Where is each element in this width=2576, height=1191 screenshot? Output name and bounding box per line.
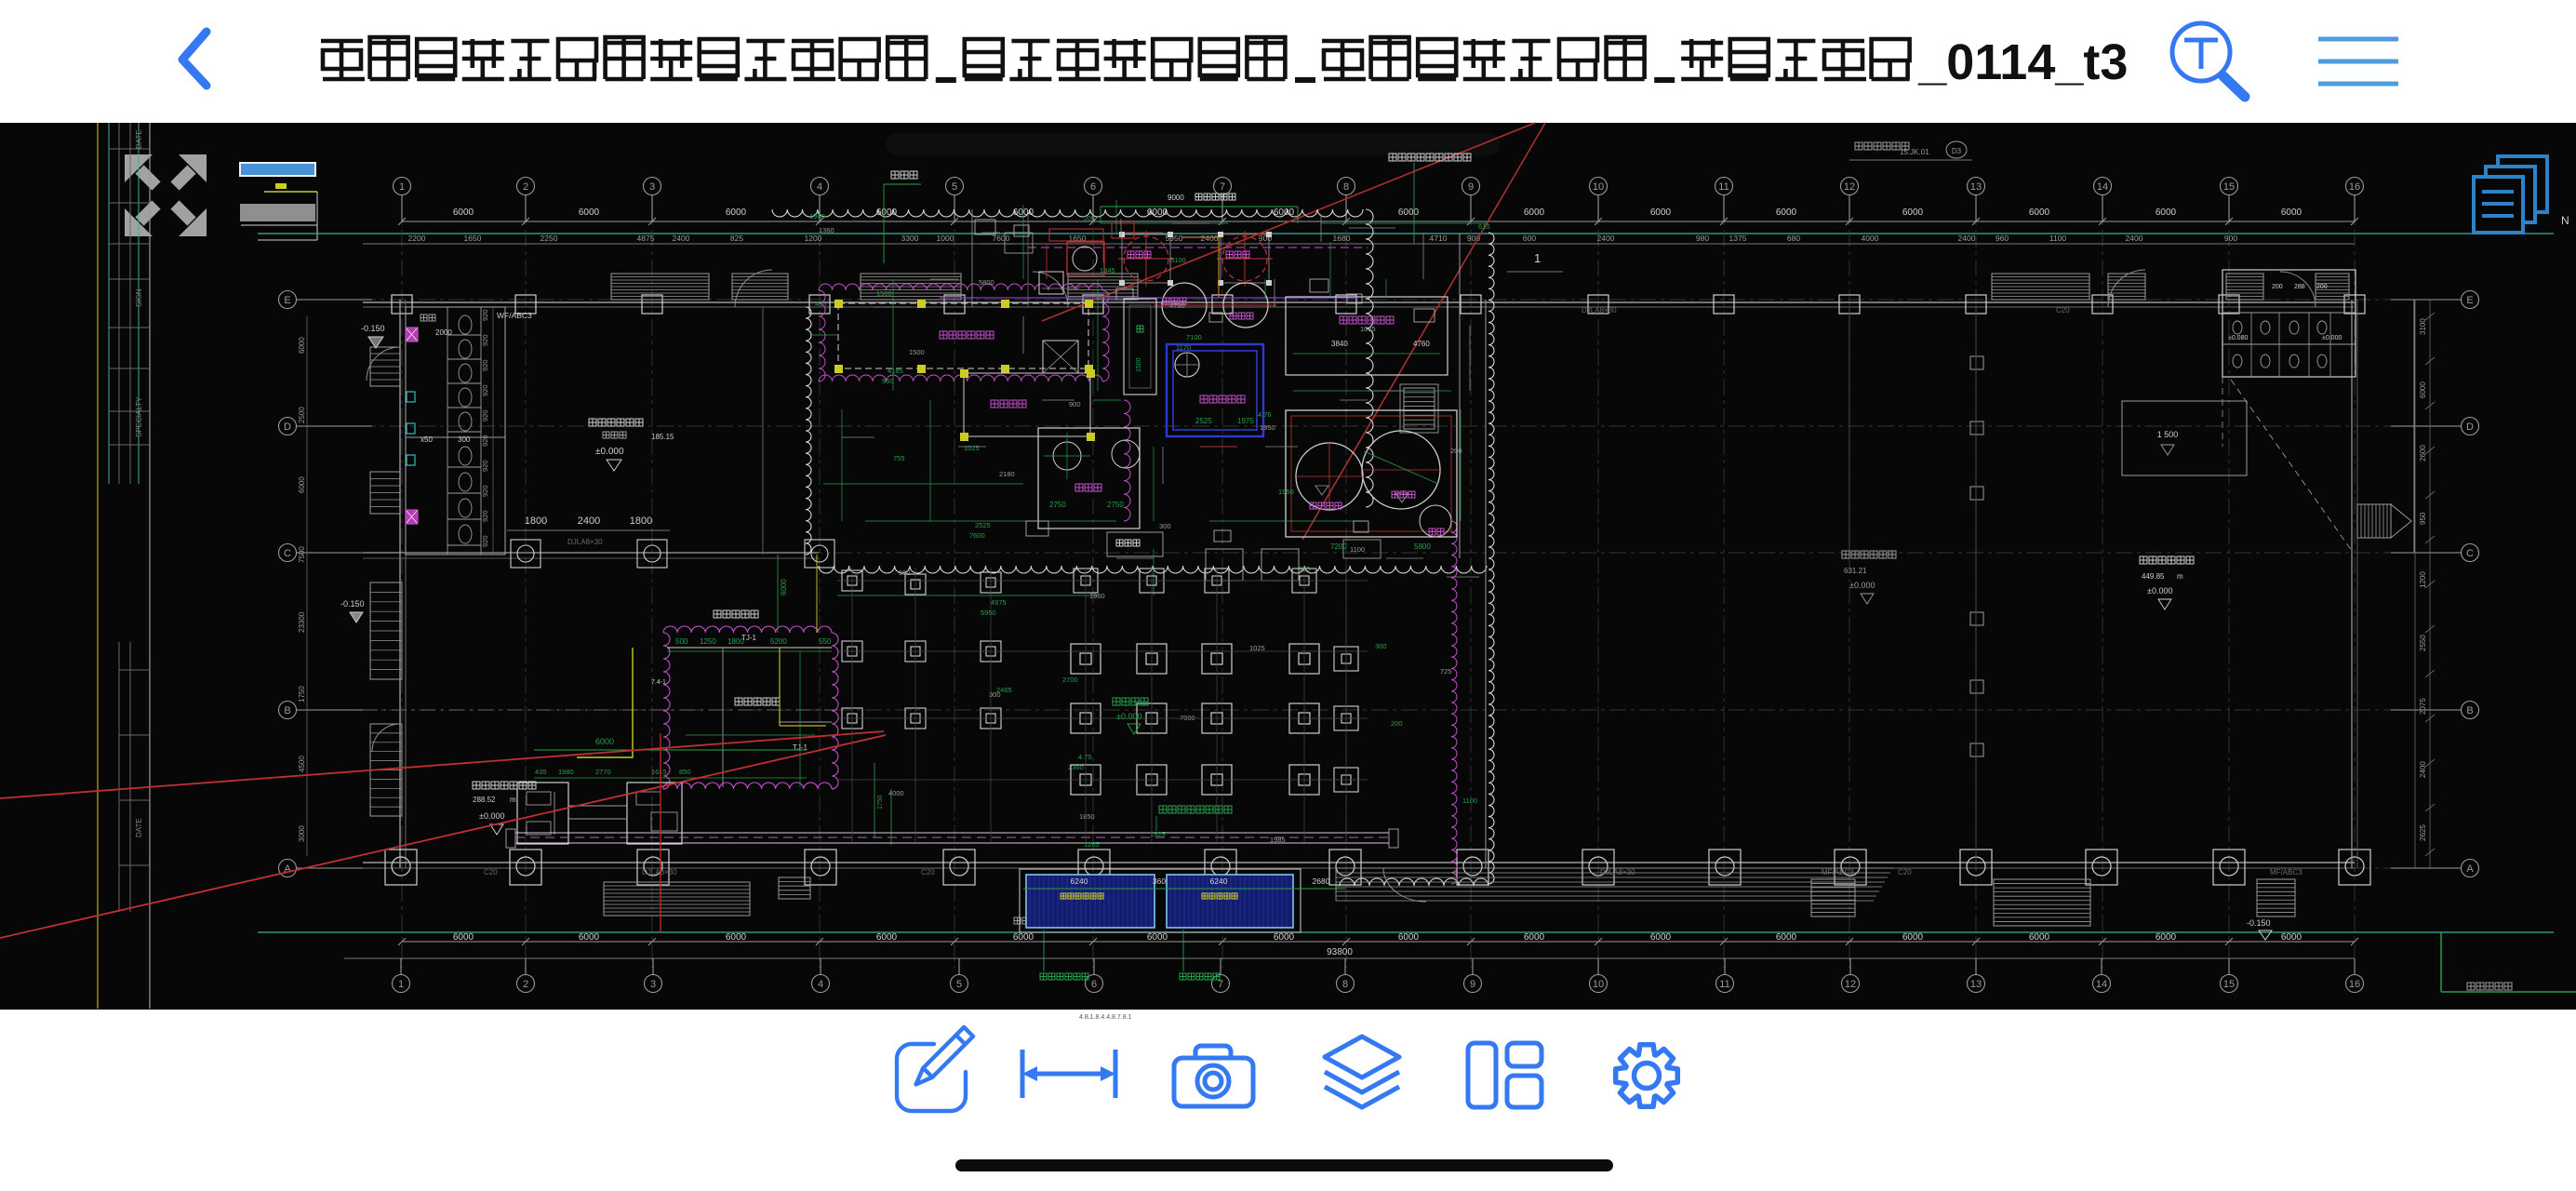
svg-text:6000: 6000 bbox=[726, 932, 747, 943]
svg-text:6000: 6000 bbox=[1274, 932, 1295, 943]
svg-text:DATE: DATE bbox=[135, 129, 143, 149]
svg-text:1345: 1345 bbox=[1100, 266, 1115, 274]
svg-text:6000: 6000 bbox=[1524, 932, 1545, 943]
svg-text:920: 920 bbox=[481, 460, 489, 472]
svg-text:960: 960 bbox=[1995, 234, 2009, 243]
svg-text:1500: 1500 bbox=[876, 289, 892, 298]
svg-text:900: 900 bbox=[1069, 400, 1081, 408]
svg-text:1: 1 bbox=[399, 181, 405, 193]
svg-text:6: 6 bbox=[1090, 181, 1096, 193]
svg-text:C20: C20 bbox=[2056, 306, 2070, 314]
svg-text:4760: 4760 bbox=[1169, 301, 1185, 310]
svg-text:_0114_t3: _0114_t3 bbox=[1917, 34, 2128, 90]
svg-text:500: 500 bbox=[899, 569, 911, 577]
svg-text:6000: 6000 bbox=[780, 579, 788, 595]
svg-text:360: 360 bbox=[1153, 877, 1166, 886]
svg-text:D: D bbox=[2466, 422, 2474, 433]
svg-text:1980: 1980 bbox=[558, 768, 574, 776]
svg-text:B: B bbox=[2466, 705, 2473, 716]
svg-text:±0.000: ±0.000 bbox=[1849, 581, 1875, 590]
svg-text:200: 200 bbox=[2272, 284, 2283, 290]
svg-text:725: 725 bbox=[1440, 667, 1452, 676]
svg-text:185.15: 185.15 bbox=[651, 433, 674, 441]
svg-text:2500: 2500 bbox=[298, 407, 306, 423]
svg-text:2400: 2400 bbox=[2419, 761, 2427, 778]
svg-text:5: 5 bbox=[952, 181, 957, 193]
svg-text:900: 900 bbox=[2224, 234, 2237, 243]
svg-text:6000: 6000 bbox=[726, 207, 747, 218]
svg-text:5800: 5800 bbox=[1414, 542, 1431, 551]
svg-text:920: 920 bbox=[481, 334, 489, 346]
svg-text:300: 300 bbox=[458, 435, 471, 444]
svg-text:C20: C20 bbox=[921, 868, 935, 877]
svg-text:6000: 6000 bbox=[1524, 207, 1545, 218]
svg-text:1985: 1985 bbox=[1270, 836, 1286, 844]
svg-text:2700: 2700 bbox=[1062, 676, 1078, 684]
svg-text:2750: 2750 bbox=[1107, 501, 1124, 509]
svg-text:920: 920 bbox=[481, 535, 489, 547]
svg-text:288: 288 bbox=[2294, 284, 2305, 290]
svg-text:DJLA8×30: DJLA8×30 bbox=[1600, 868, 1635, 877]
svg-text:1250: 1250 bbox=[700, 637, 716, 646]
svg-text:±0.000: ±0.000 bbox=[1116, 712, 1141, 721]
svg-text:2250: 2250 bbox=[541, 234, 558, 243]
svg-text:2400: 2400 bbox=[1597, 234, 1615, 243]
svg-text:1800: 1800 bbox=[630, 515, 652, 527]
svg-text:5100: 5100 bbox=[1170, 256, 1186, 264]
svg-text:N: N bbox=[2561, 214, 2569, 227]
svg-text:920: 920 bbox=[481, 359, 489, 371]
svg-text:1500: 1500 bbox=[909, 348, 925, 356]
svg-text:1800: 1800 bbox=[525, 515, 547, 527]
svg-text:2625: 2625 bbox=[2419, 824, 2427, 841]
svg-text:7000: 7000 bbox=[1180, 714, 1195, 722]
svg-text:DJLA8×30: DJLA8×30 bbox=[1582, 306, 1617, 314]
svg-text:755: 755 bbox=[893, 454, 905, 462]
svg-text:3300: 3300 bbox=[901, 234, 919, 243]
svg-text:6000: 6000 bbox=[453, 207, 474, 218]
svg-text:2400: 2400 bbox=[1201, 234, 1219, 243]
svg-text:6000: 6000 bbox=[298, 476, 306, 493]
svg-text:1975: 1975 bbox=[1237, 417, 1254, 425]
svg-text:6000: 6000 bbox=[1398, 207, 1420, 218]
svg-text:2000: 2000 bbox=[435, 328, 452, 337]
svg-text:2075: 2075 bbox=[2419, 698, 2427, 715]
svg-text:6240: 6240 bbox=[1210, 877, 1228, 886]
svg-text:1: 1 bbox=[1534, 251, 1541, 265]
svg-text:SPECIALTY: SPECIALTY bbox=[135, 396, 143, 437]
svg-text:6000: 6000 bbox=[876, 932, 898, 943]
svg-text:TJ-1: TJ-1 bbox=[741, 634, 757, 642]
svg-text:-0.150: -0.150 bbox=[361, 324, 385, 333]
svg-text:4: 4 bbox=[817, 181, 822, 193]
svg-text:10: 10 bbox=[1593, 979, 1604, 990]
svg-text:2525: 2525 bbox=[975, 521, 991, 529]
svg-text:1960: 1960 bbox=[809, 212, 825, 221]
svg-text:SIGN: SIGN bbox=[135, 288, 143, 307]
svg-text:300: 300 bbox=[1375, 642, 1387, 650]
svg-text:15: 15 bbox=[2223, 181, 2235, 193]
svg-text:11: 11 bbox=[1718, 181, 1728, 193]
svg-text:WF/ABC3: WF/ABC3 bbox=[497, 311, 532, 320]
svg-text:D: D bbox=[284, 422, 291, 433]
svg-text:4000: 4000 bbox=[1862, 234, 1879, 243]
svg-text:1025: 1025 bbox=[1360, 325, 1376, 333]
svg-text:7600: 7600 bbox=[993, 234, 1010, 243]
svg-text:6000: 6000 bbox=[1902, 932, 1924, 943]
svg-text:5: 5 bbox=[956, 979, 962, 990]
svg-text:550: 550 bbox=[819, 637, 832, 646]
svg-text:2400: 2400 bbox=[1958, 234, 1976, 243]
svg-text:435: 435 bbox=[535, 768, 547, 776]
svg-text:2525: 2525 bbox=[1195, 417, 1212, 425]
svg-text:920: 920 bbox=[481, 384, 489, 396]
svg-text:4: 4 bbox=[818, 979, 823, 990]
svg-text:11: 11 bbox=[1719, 979, 1729, 990]
svg-text:980: 980 bbox=[1696, 234, 1709, 243]
svg-text:6000: 6000 bbox=[298, 337, 306, 354]
svg-text:2: 2 bbox=[523, 181, 528, 193]
svg-text:1200: 1200 bbox=[2419, 571, 2427, 588]
svg-text:2400: 2400 bbox=[2126, 234, 2143, 243]
svg-text:4710: 4710 bbox=[1430, 234, 1448, 243]
svg-text:1025: 1025 bbox=[964, 444, 980, 452]
svg-text:920: 920 bbox=[481, 485, 489, 497]
svg-text:16: 16 bbox=[2349, 979, 2360, 990]
svg-text:7: 7 bbox=[1218, 979, 1223, 990]
svg-text:2770: 2770 bbox=[595, 768, 611, 776]
svg-text:9: 9 bbox=[1470, 979, 1475, 990]
svg-text:300: 300 bbox=[1159, 522, 1171, 530]
svg-text:A: A bbox=[2466, 863, 2474, 875]
svg-text:-0.150: -0.150 bbox=[340, 599, 365, 609]
svg-text:6000: 6000 bbox=[2281, 207, 2302, 218]
svg-text:920: 920 bbox=[481, 510, 489, 522]
svg-text:1: 1 bbox=[398, 979, 404, 990]
svg-text:8: 8 bbox=[1342, 979, 1348, 990]
svg-text:12: 12 bbox=[1845, 979, 1856, 990]
svg-text:6000: 6000 bbox=[1147, 932, 1168, 943]
svg-text:4500: 4500 bbox=[298, 756, 306, 772]
svg-text:6240: 6240 bbox=[1071, 877, 1088, 886]
svg-text:2400: 2400 bbox=[578, 515, 600, 527]
svg-text:3100: 3100 bbox=[2419, 318, 2427, 335]
svg-text:DJLA8×30: DJLA8×30 bbox=[567, 538, 603, 546]
svg-text:1100: 1100 bbox=[2049, 234, 2067, 243]
svg-text:3: 3 bbox=[649, 181, 655, 193]
svg-text:680: 680 bbox=[1787, 234, 1800, 243]
svg-text:3840: 3840 bbox=[1331, 340, 1348, 348]
svg-text:6000: 6000 bbox=[1776, 932, 1797, 943]
svg-text:10: 10 bbox=[1593, 181, 1604, 193]
svg-text:631.21: 631.21 bbox=[1844, 567, 1867, 575]
svg-text:920: 920 bbox=[481, 409, 489, 422]
svg-text:200: 200 bbox=[2316, 284, 2328, 290]
svg-text:14: 14 bbox=[2096, 979, 2107, 990]
svg-text:E: E bbox=[284, 295, 290, 306]
svg-text:4975: 4975 bbox=[991, 598, 1007, 607]
svg-text:200: 200 bbox=[1391, 719, 1403, 728]
svg-text:E: E bbox=[2466, 295, 2473, 306]
svg-text:850: 850 bbox=[679, 768, 691, 776]
svg-text:±0.000: ±0.000 bbox=[2147, 586, 2172, 595]
svg-text:±0.000: ±0.000 bbox=[2322, 335, 2342, 341]
svg-text:9: 9 bbox=[1468, 181, 1474, 193]
svg-text:6000: 6000 bbox=[579, 207, 600, 218]
svg-text:200: 200 bbox=[1084, 216, 1095, 222]
svg-text:1950: 1950 bbox=[1260, 423, 1275, 432]
svg-text:x50: x50 bbox=[420, 435, 433, 444]
svg-text:4760: 4760 bbox=[1413, 340, 1430, 348]
svg-text:DATE: DATE bbox=[135, 818, 143, 837]
svg-text:2400: 2400 bbox=[673, 234, 690, 243]
svg-text:1950: 1950 bbox=[1278, 488, 1294, 496]
svg-text:6000: 6000 bbox=[2156, 932, 2177, 943]
svg-text:1 500: 1 500 bbox=[2157, 430, 2179, 439]
svg-text:15.JK.01: 15.JK.01 bbox=[1900, 148, 1929, 156]
svg-text:6000: 6000 bbox=[2029, 932, 2050, 943]
svg-text:MF/ABC3: MF/ABC3 bbox=[1822, 868, 1854, 877]
svg-text:9000: 9000 bbox=[1168, 194, 1184, 202]
svg-text:2200: 2200 bbox=[408, 234, 426, 243]
svg-text:4185: 4185 bbox=[888, 367, 903, 375]
svg-text:12: 12 bbox=[1844, 181, 1855, 193]
svg-text:1170: 1170 bbox=[1176, 343, 1191, 352]
svg-text:2600: 2600 bbox=[2419, 445, 2427, 462]
svg-text:920: 920 bbox=[481, 309, 489, 321]
svg-text:1925: 1925 bbox=[1150, 830, 1166, 838]
svg-text:4.76: 4.76 bbox=[1258, 410, 1272, 419]
svg-text:1200: 1200 bbox=[805, 234, 822, 243]
svg-text:920: 920 bbox=[481, 435, 489, 447]
svg-text:7.4-1: 7.4-1 bbox=[651, 679, 666, 686]
svg-text:6000: 6000 bbox=[1776, 207, 1797, 218]
svg-text:6: 6 bbox=[1091, 979, 1097, 990]
svg-text:m: m bbox=[2177, 572, 2183, 581]
svg-text:1750: 1750 bbox=[298, 686, 306, 703]
svg-text:6000: 6000 bbox=[2419, 381, 2427, 398]
svg-text:1100: 1100 bbox=[1462, 796, 1477, 805]
svg-text:C: C bbox=[2466, 548, 2474, 559]
svg-text:200: 200 bbox=[1450, 447, 1462, 455]
svg-text:610: 610 bbox=[1478, 222, 1490, 231]
svg-text:455: 455 bbox=[815, 300, 827, 308]
svg-text:6000: 6000 bbox=[1650, 932, 1672, 943]
svg-text:4000: 4000 bbox=[888, 789, 904, 797]
svg-text:TJ-1: TJ-1 bbox=[793, 743, 808, 752]
svg-text:B: B bbox=[284, 705, 290, 716]
svg-text:15: 15 bbox=[2223, 979, 2235, 990]
svg-text:6000: 6000 bbox=[2281, 932, 2302, 943]
svg-text:16: 16 bbox=[2349, 181, 2360, 193]
svg-text:C20: C20 bbox=[484, 868, 498, 877]
svg-text:2750: 2750 bbox=[1049, 501, 1066, 509]
svg-text:5950: 5950 bbox=[981, 609, 996, 617]
svg-text:7100: 7100 bbox=[1186, 333, 1202, 341]
svg-text:7: 7 bbox=[1220, 181, 1225, 193]
svg-text:DJLA8×30: DJLA8×30 bbox=[642, 868, 677, 877]
svg-text:±0.000: ±0.000 bbox=[479, 811, 504, 821]
svg-text:6000: 6000 bbox=[453, 932, 474, 943]
svg-text:D3: D3 bbox=[1952, 147, 1962, 155]
svg-text:4.75: 4.75 bbox=[1078, 753, 1092, 761]
svg-text:1680: 1680 bbox=[1333, 234, 1351, 243]
svg-text:2180: 2180 bbox=[999, 470, 1015, 478]
svg-text:6000: 6000 bbox=[2029, 207, 2050, 218]
svg-text:±0.000: ±0.000 bbox=[595, 447, 624, 457]
svg-text:m: m bbox=[510, 796, 516, 804]
svg-text:950: 950 bbox=[882, 377, 894, 385]
svg-text:2: 2 bbox=[523, 979, 528, 990]
svg-text:1850: 1850 bbox=[1079, 812, 1095, 821]
svg-text:13: 13 bbox=[1970, 979, 1982, 990]
svg-text:1100: 1100 bbox=[1350, 545, 1365, 554]
svg-text:1650: 1650 bbox=[464, 234, 482, 243]
svg-text:449.85: 449.85 bbox=[2142, 572, 2165, 581]
svg-text:288.52: 288.52 bbox=[473, 796, 496, 804]
svg-text:6000: 6000 bbox=[579, 932, 600, 943]
svg-text:2550: 2550 bbox=[2419, 635, 2427, 651]
svg-text:1615: 1615 bbox=[651, 768, 667, 776]
svg-text:±0.080: ±0.080 bbox=[2228, 335, 2248, 341]
svg-text:1265: 1265 bbox=[1084, 840, 1100, 849]
svg-text:825: 825 bbox=[730, 234, 743, 243]
svg-text:950: 950 bbox=[2419, 512, 2427, 525]
svg-text:1375: 1375 bbox=[1729, 234, 1747, 243]
svg-text:7500: 7500 bbox=[298, 546, 306, 563]
svg-text:4875: 4875 bbox=[637, 234, 655, 243]
svg-text:7600: 7600 bbox=[969, 531, 985, 540]
svg-text:MF/ABC3: MF/ABC3 bbox=[2270, 868, 2302, 877]
svg-text:6000: 6000 bbox=[1398, 932, 1420, 943]
svg-text:93800: 93800 bbox=[1327, 947, 1353, 957]
svg-text:8: 8 bbox=[1343, 181, 1349, 193]
svg-text:2680: 2680 bbox=[1313, 877, 1330, 886]
svg-text:1360: 1360 bbox=[819, 226, 834, 234]
svg-text:6000: 6000 bbox=[1013, 932, 1034, 943]
svg-text:600: 600 bbox=[1523, 234, 1536, 243]
svg-text:1500: 1500 bbox=[1136, 357, 1142, 372]
svg-text:7200: 7200 bbox=[1330, 542, 1347, 551]
svg-text:1000: 1000 bbox=[937, 234, 954, 243]
svg-text:23300: 23300 bbox=[298, 611, 306, 633]
svg-text:1750: 1750 bbox=[877, 795, 884, 810]
svg-text:-0.150: -0.150 bbox=[2247, 918, 2271, 928]
svg-text:C20: C20 bbox=[1898, 868, 1912, 877]
svg-text:13: 13 bbox=[1970, 181, 1982, 193]
svg-text:6000: 6000 bbox=[2156, 207, 2177, 218]
svg-text:14: 14 bbox=[2097, 181, 2108, 193]
svg-text:6000: 6000 bbox=[595, 737, 614, 746]
svg-text:5200: 5200 bbox=[770, 637, 787, 646]
svg-text:500: 500 bbox=[675, 637, 688, 646]
svg-text:C: C bbox=[284, 548, 291, 559]
svg-text:6000: 6000 bbox=[1650, 207, 1672, 218]
svg-text:6000: 6000 bbox=[1902, 207, 1924, 218]
svg-text:3000: 3000 bbox=[298, 825, 306, 842]
svg-text:5800: 5800 bbox=[979, 278, 994, 287]
svg-text:3: 3 bbox=[650, 979, 656, 990]
